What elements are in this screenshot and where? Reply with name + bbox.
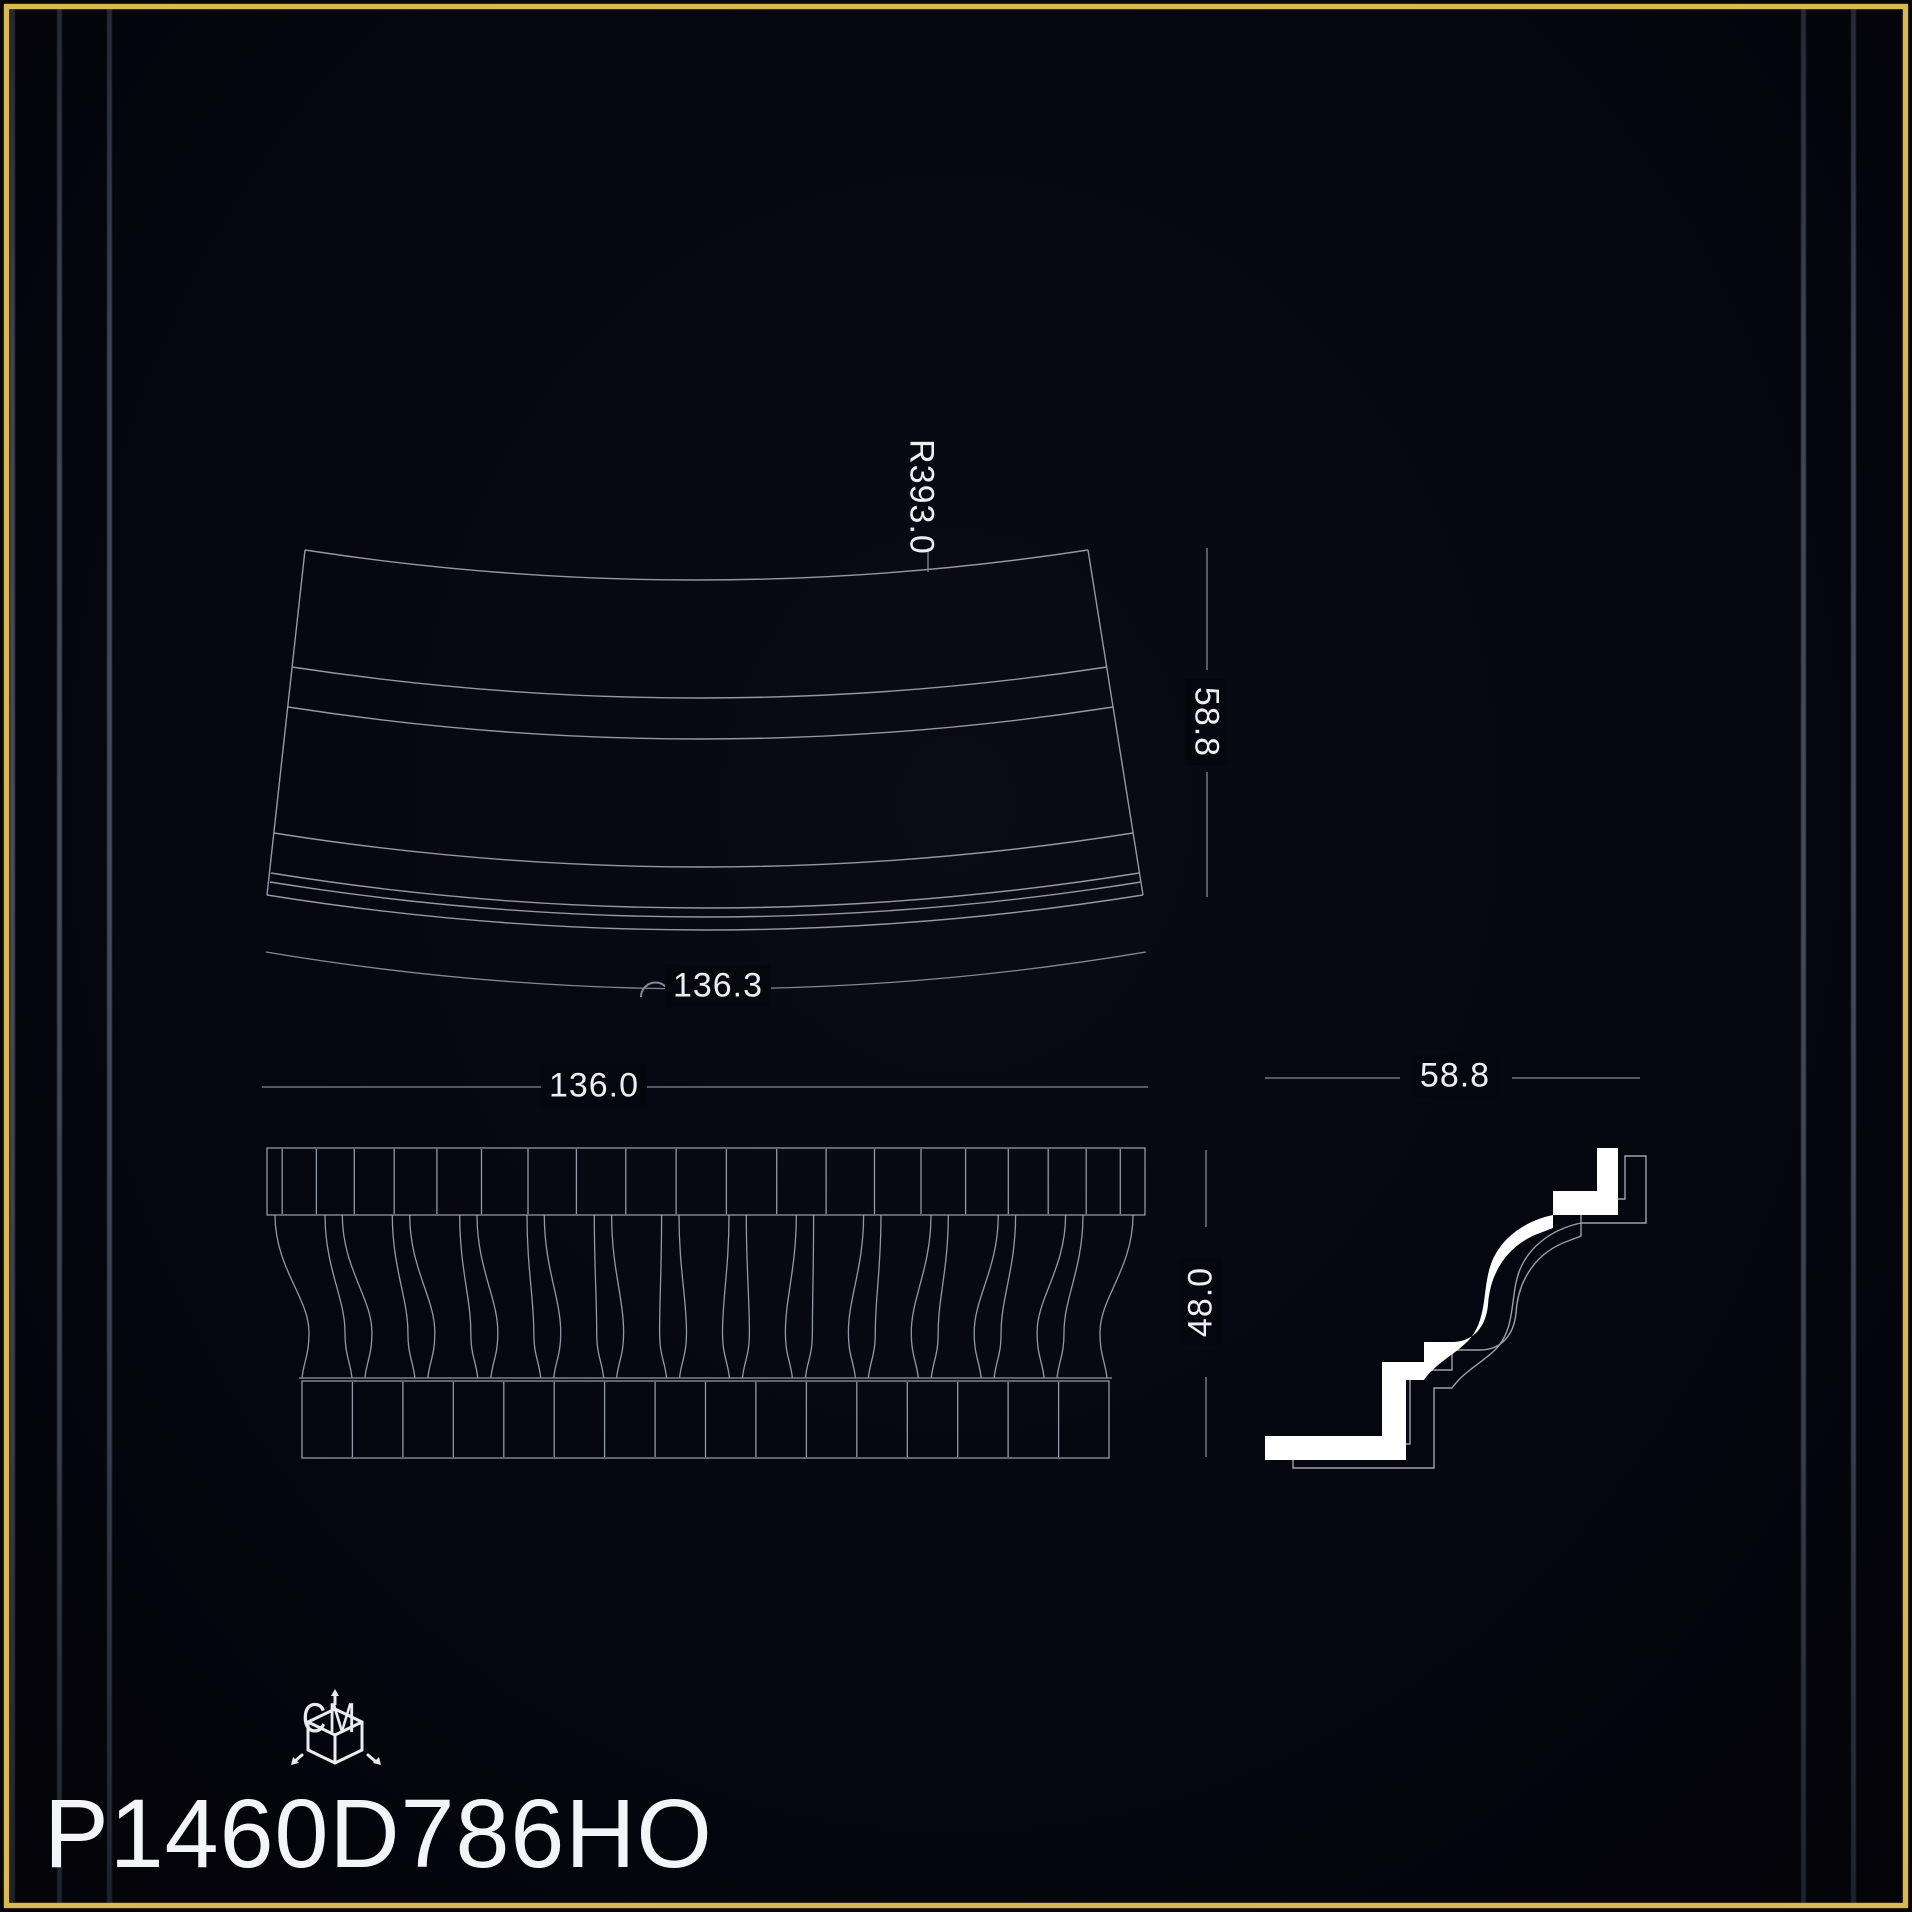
top-view-depth-label: 58.8 bbox=[1185, 679, 1228, 765]
drawing-line bbox=[868, 1215, 881, 1378]
arc-length-label: 136.3 bbox=[665, 965, 771, 1008]
dentil-row bbox=[282, 1149, 1120, 1214]
drawing-line bbox=[612, 1215, 624, 1378]
front-view-elevation bbox=[267, 1148, 1145, 1458]
drawing-line bbox=[785, 1215, 796, 1378]
lower-band-blocks bbox=[352, 1382, 1058, 1457]
profile-section bbox=[1265, 1148, 1646, 1468]
drawing-line bbox=[527, 1215, 541, 1378]
profile-depth-label: 58.8 bbox=[1412, 1055, 1498, 1098]
drawing-line bbox=[742, 1215, 749, 1378]
corbel-row bbox=[275, 1215, 1133, 1378]
drawing-line bbox=[994, 1215, 1016, 1378]
product-code: P1460D786HO bbox=[44, 1778, 713, 1890]
drawing-line bbox=[460, 1215, 478, 1378]
drawing-line bbox=[723, 1215, 730, 1378]
drawing-line bbox=[974, 1215, 998, 1378]
drawing-line bbox=[594, 1215, 603, 1378]
dentil-band-outline bbox=[267, 1148, 1145, 1215]
drawing-line bbox=[1100, 1215, 1133, 1378]
front-width-label: 136.0 bbox=[541, 1065, 647, 1108]
drawing-line bbox=[544, 1215, 560, 1378]
drawing-line bbox=[911, 1215, 931, 1378]
drawing-line bbox=[848, 1215, 863, 1378]
drawing-line bbox=[660, 1215, 667, 1378]
profile-silhouette bbox=[1265, 1148, 1618, 1460]
unit-label: CM bbox=[302, 1694, 357, 1742]
drawing-line bbox=[325, 1215, 352, 1378]
drawing-line bbox=[1057, 1215, 1083, 1378]
top-view-radius-label: R393.0 bbox=[900, 431, 943, 563]
drawing-line bbox=[679, 1215, 687, 1378]
front-height-label: 48.0 bbox=[1180, 1259, 1223, 1345]
top-view-plan bbox=[267, 550, 1143, 930]
drawing-line bbox=[931, 1215, 948, 1378]
cornice-spec-sheet: R393.0 58.8 136.3 136.0 48.0 58.8 CM P14… bbox=[0, 0, 1912, 1912]
dimension-lines bbox=[262, 548, 1640, 1457]
drawing-line bbox=[275, 1215, 309, 1378]
technical-drawing bbox=[0, 0, 1912, 1912]
drawing-line bbox=[477, 1215, 498, 1378]
drawing-line bbox=[410, 1215, 435, 1378]
drawing-line bbox=[805, 1215, 813, 1378]
unit-badge: CM bbox=[288, 1688, 371, 1742]
